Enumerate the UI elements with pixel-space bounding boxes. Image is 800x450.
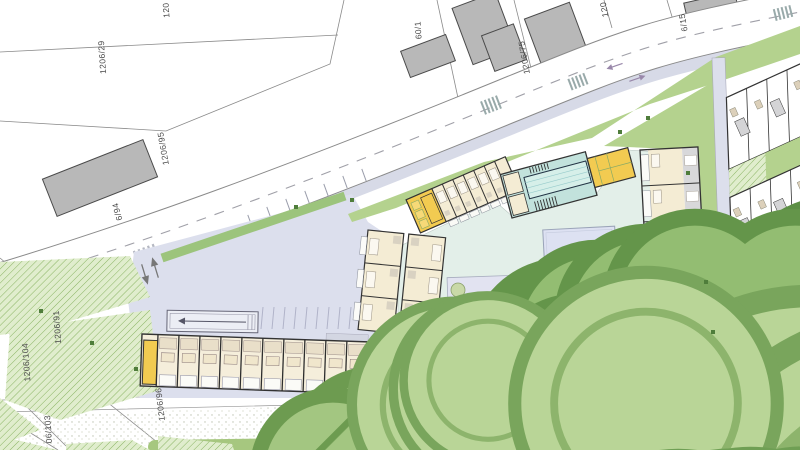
existing-building xyxy=(452,0,527,78)
parcel-label: 6/94 xyxy=(110,202,124,222)
parcel-label: 120 xyxy=(598,1,611,18)
parcel-label: 1206/75 xyxy=(516,40,532,75)
existing-building xyxy=(42,140,157,217)
parcel-label: 1206/95 xyxy=(155,131,171,166)
site-plan-page: 120 1206/29 1206/95 6/94 60/1 1206/75 12… xyxy=(0,0,800,450)
parcel-label: 120 xyxy=(160,2,171,18)
parcel-label: 60/1 xyxy=(412,21,423,40)
stair-core xyxy=(142,340,158,384)
existing-building xyxy=(401,34,456,77)
site-plan-canvas: 120 1206/29 1206/95 6/94 60/1 1206/75 12… xyxy=(0,0,800,450)
parcel-label: 1206/29 xyxy=(96,40,108,74)
parcel-label: 06/103 xyxy=(42,415,54,444)
underground-ramp xyxy=(167,310,258,333)
